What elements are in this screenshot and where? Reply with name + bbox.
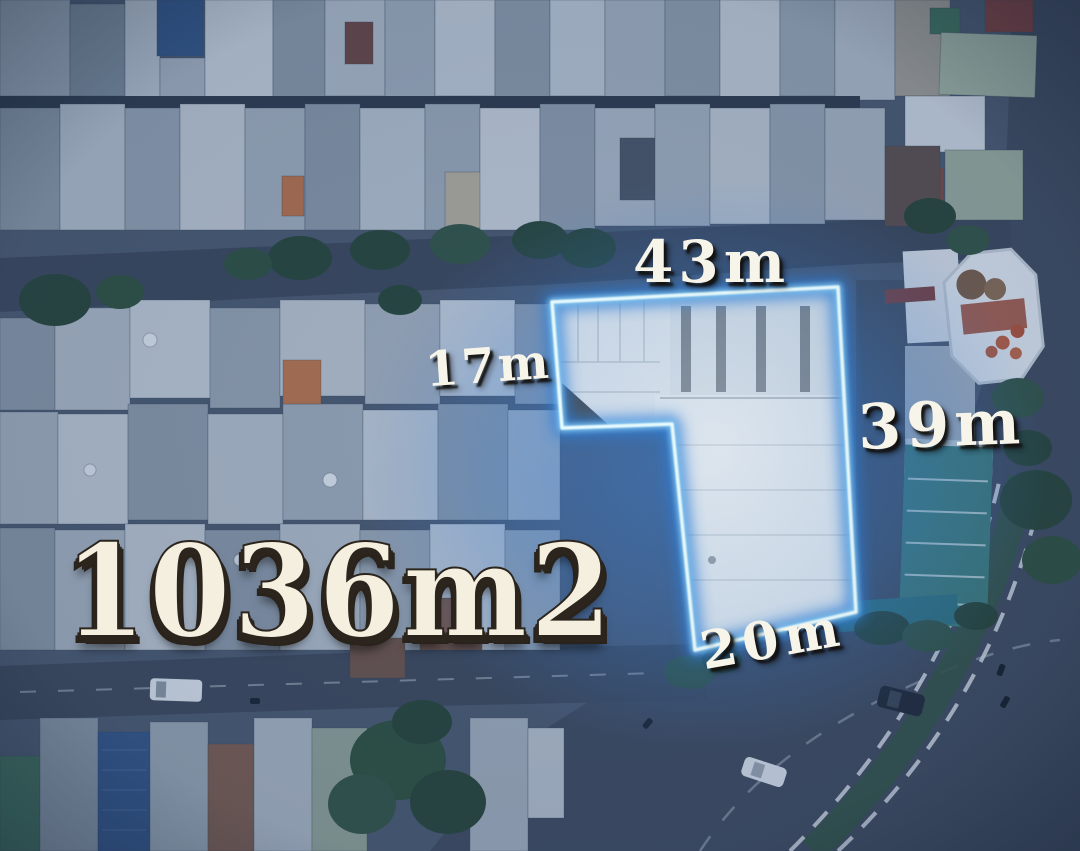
dimension-label-left: 17m	[423, 338, 553, 395]
aerial-photo: 43m 17m 39m 20m 1036m2	[0, 0, 1080, 851]
area-label: 1036m2	[64, 528, 615, 656]
dimension-label-top: 43m	[633, 233, 790, 291]
dimension-label-right: 39m	[857, 391, 1026, 459]
